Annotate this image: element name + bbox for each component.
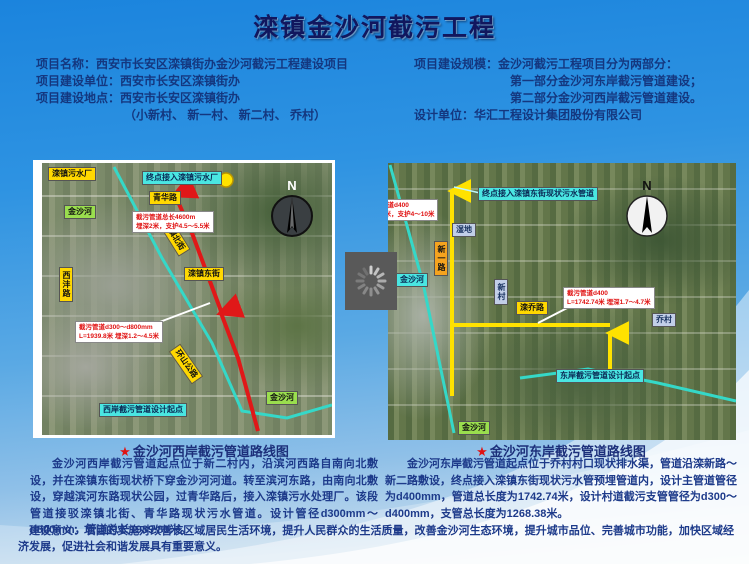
- west-note-lower-line2: L=1939.8米 埋深1.2～4.5米: [79, 332, 159, 341]
- project-part2: 第二部分金沙河西岸截污管道建设。: [510, 90, 744, 107]
- label-river-lower: 金沙河: [266, 391, 298, 405]
- label-east-endpoint: 终点接入滦镇东街现状污水管道: [478, 187, 598, 201]
- label-river-upper: 金沙河: [64, 205, 96, 219]
- label-sewage-plant: 滦镇污水厂: [48, 167, 96, 181]
- label-xincun-village: 新村: [494, 279, 508, 305]
- west-map-image: 滦镇污水厂 终点接入滦镇污水厂 青华路 金沙河 截污管道总长4600m 埋深2米…: [42, 163, 332, 435]
- label-xifeng-road: 西沣路: [59, 267, 73, 302]
- west-note-lower-line1: 截污管道d300～d800mm: [79, 323, 159, 332]
- east-note-upper-line1: 截污管道d400: [388, 201, 434, 210]
- east-note-lower-line1: 截污管道d400: [567, 289, 651, 298]
- label-west-endpoint: 终点接入滦镇污水厂: [142, 171, 222, 185]
- label-luanqiao-road: 滦乔路: [516, 301, 548, 315]
- west-note-upper-line2: 埋深2米，支护4.5～5.5米: [136, 222, 210, 231]
- east-note-upper-line2: 埋深2米，支护4～10米: [388, 210, 434, 219]
- east-map-frame: 终点接入滦镇东街现状污水管道 截污管道d400 埋深2米，支护4～10米 湿地 …: [388, 163, 736, 440]
- west-note-upper-line1: 截污管道总长4600m: [136, 213, 210, 222]
- west-compass: N: [269, 179, 315, 244]
- label-east-start-point: 东岸截污管道设计起点: [556, 369, 644, 383]
- label-qinghua-road: 青华路: [149, 191, 181, 205]
- west-note-lower: 截污管道d300～d800mm L=1939.8米 埋深1.2～4.5米: [75, 321, 163, 343]
- project-designer: 设计单位：华汇工程设计集团股份有限公司: [414, 107, 744, 124]
- label-luanzhen-east-street: 滦镇东街: [184, 267, 224, 281]
- west-route-lower: [221, 313, 258, 431]
- image-loading-placeholder: [345, 252, 397, 310]
- slide: 滦镇金沙河截污工程 项目名称：西安市长安区滦镇街办金沙河截污工程建设项目 项目建…: [0, 0, 749, 564]
- east-map-image: 终点接入滦镇东街现状污水管道 截污管道d400 埋深2米，支护4～10米 湿地 …: [388, 163, 736, 440]
- east-compass: N: [624, 179, 670, 244]
- east-note-upper: 截污管道d400 埋深2米，支护4～10米: [388, 199, 438, 221]
- east-compass-n: N: [624, 179, 670, 193]
- east-note-lower: 截污管道d400 L=1742.74米 埋深1.7～4.7米: [563, 287, 655, 309]
- east-caption-body: 金沙河东岸截污管道起点位于乔村村口现状排水渠，管道沿滦新路～新二路敷设，终点接入…: [385, 456, 737, 522]
- east-map-routes: [388, 163, 736, 440]
- project-scale: 项目建设规模：金沙河截污工程项目分为两部分：: [414, 56, 744, 73]
- project-info-right: 项目建设规模：金沙河截污工程项目分为两部分： 第一部分金沙河东岸截污管道建设； …: [414, 56, 744, 124]
- west-map-frame: 滦镇污水厂 终点接入滦镇污水厂 青华路 金沙河 截污管道总长4600m 埋深2米…: [33, 160, 335, 438]
- page-title: 滦镇金沙河截污工程: [0, 8, 749, 44]
- label-xinyi-road: 新一路: [434, 241, 448, 276]
- label-qiaocun-village: 乔村: [652, 313, 676, 327]
- project-part1: 第一部分金沙河东岸截污管道建设；: [510, 73, 744, 90]
- project-villages: （小新村、 新一村、 新二村、 乔村）: [124, 107, 406, 124]
- west-compass-n: N: [269, 179, 315, 193]
- label-west-start-point: 西岸截污管道设计起点: [99, 403, 187, 417]
- project-location: 项目建设地点：西安市长安区滦镇街办: [36, 90, 406, 107]
- label-east-river-left: 金沙河: [396, 273, 428, 287]
- project-name: 项目名称：西安市长安区滦镇街办金沙河截污工程建设项目: [36, 56, 406, 73]
- label-east-river-bottom: 金沙河: [458, 421, 490, 435]
- project-builder: 项目建设单位：西安市长安区滦镇街办: [36, 73, 406, 90]
- spinner-icon: [354, 264, 388, 298]
- compass-icon: [269, 193, 315, 239]
- project-info-left: 项目名称：西安市长安区滦镇街办金沙河截污工程建设项目 项目建设单位：西安市长安区…: [36, 56, 406, 124]
- west-note-upper: 截污管道总长4600m 埋深2米，支护4.5～5.5米: [132, 211, 214, 233]
- west-note-leader: [157, 303, 210, 323]
- label-wetland: 湿地: [452, 223, 476, 237]
- compass-icon: [624, 193, 670, 239]
- construction-significance: 建设意义：项目的实施对改善该区域居民生活环境，提升人民群众的生活质量，改善金沙河…: [18, 524, 734, 555]
- east-endpoint-leader: [454, 187, 480, 193]
- east-note-lower-line2: L=1742.74米 埋深1.7～4.7米: [567, 298, 651, 307]
